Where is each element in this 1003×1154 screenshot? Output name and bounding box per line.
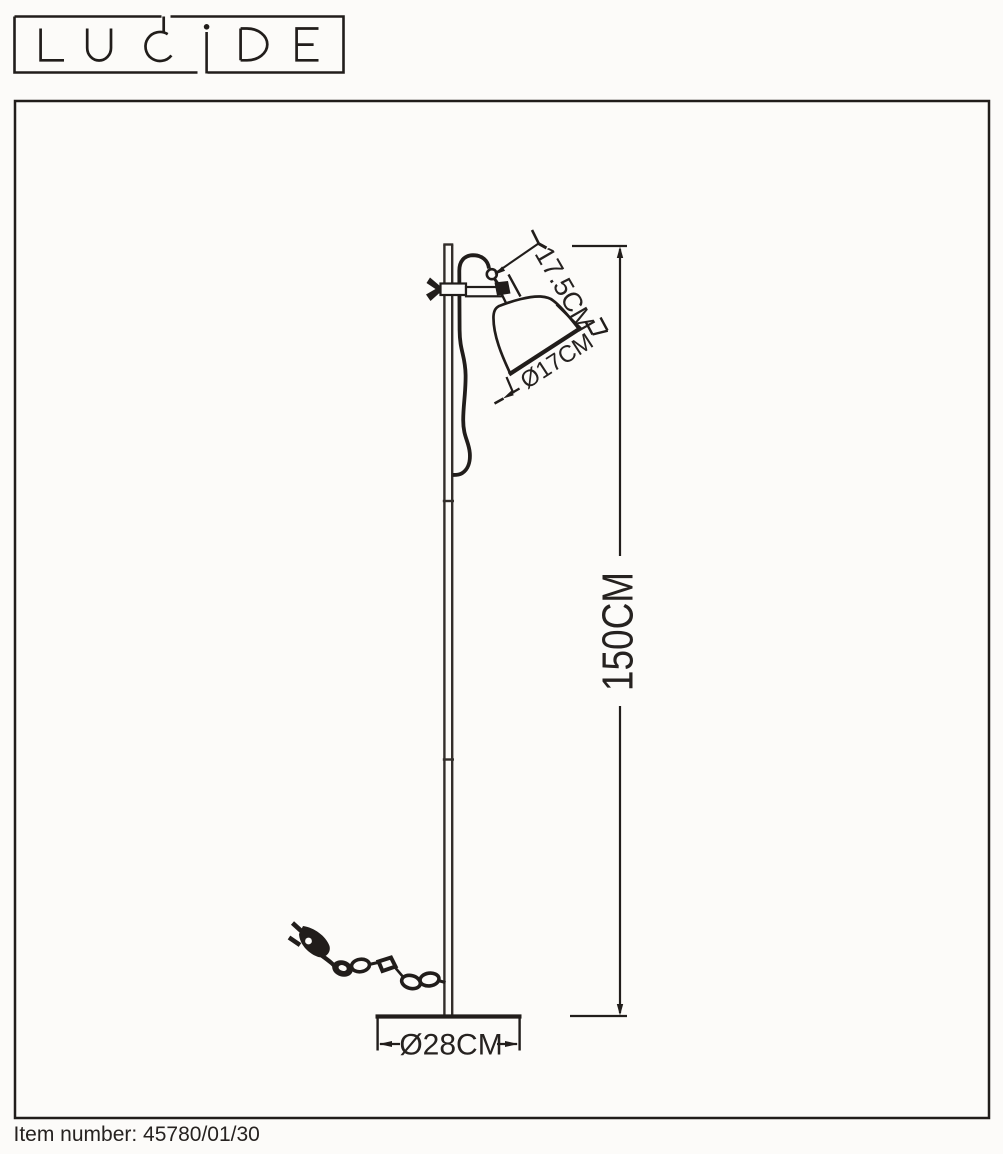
svg-text:150CM: 150CM (593, 572, 643, 691)
svg-text:Ø28CM: Ø28CM (399, 1028, 502, 1061)
svg-text:Item number: 45780/01/30: Item number: 45780/01/30 (14, 1123, 260, 1146)
